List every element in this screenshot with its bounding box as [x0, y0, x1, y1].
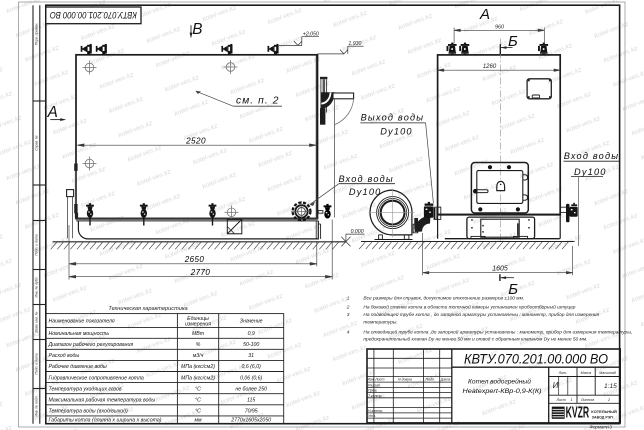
svg-text:Котел водогрейный: Котел водогрейный: [468, 378, 531, 386]
svg-text:Лист: Лист: [374, 378, 384, 382]
svg-text:1260: 1260: [483, 64, 497, 70]
svg-text:не более 250: не более 250: [235, 386, 267, 392]
svg-text:Техническая характеристика: Техническая характеристика: [108, 306, 187, 312]
svg-text:Пров.: Пров.: [368, 389, 377, 393]
svg-text:м3/ч: м3/ч: [193, 353, 204, 359]
svg-text:Максимальная рабочая температу: Максимальная рабочая температура воды: [49, 398, 156, 404]
svg-text:+2.050: +2.050: [303, 32, 319, 38]
svg-text:В: В: [192, 21, 202, 38]
svg-text:1:15: 1:15: [604, 383, 617, 390]
svg-text:50-100: 50-100: [243, 342, 259, 348]
svg-text:Вход воды: Вход воды: [564, 151, 619, 161]
svg-text:2770: 2770: [190, 268, 211, 277]
svg-text:см. п. 2: см. п. 2: [236, 96, 279, 107]
svg-text:Взам. инв. №: Взам. инв. №: [35, 311, 39, 332]
svg-text:1: 1: [347, 295, 350, 301]
svg-text:KVZR: KVZR: [566, 404, 590, 421]
svg-text:0.000: 0.000: [351, 229, 364, 235]
svg-text:70/95: 70/95: [245, 409, 258, 415]
svg-text:Вход воды: Вход воды: [339, 174, 394, 184]
svg-text:Номинальная мощность: Номинальная мощность: [49, 331, 110, 337]
svg-text:Дата: Дата: [440, 378, 450, 382]
svg-text:Утв.: Утв.: [368, 414, 376, 418]
svg-text:1.930: 1.930: [348, 41, 361, 47]
svg-text:предохранительный клапан Dy н: предохранительный клапан Dy не менее 50 …: [363, 335, 587, 342]
svg-text:И: И: [553, 381, 559, 390]
svg-text:Изм.: Изм.: [368, 378, 375, 382]
svg-text:Температура воды (вход/выход): Температура воды (вход/выход): [49, 409, 128, 415]
svg-text:Справ. №: Справ. №: [35, 135, 39, 151]
svg-text:°С: °С: [195, 409, 201, 415]
svg-text:Подп. и дата: Подп. и дата: [35, 353, 39, 374]
svg-text:Heatexpert-КВр-0,9-К(К): Heatexpert-КВр-0,9-К(К): [463, 388, 542, 395]
svg-text:Выход воды: Выход воды: [361, 112, 425, 122]
svg-text:А: А: [479, 6, 490, 23]
svg-text:Dy100: Dy100: [349, 187, 382, 197]
svg-text:Все размеры для справок, допус: Все размеры для справок, допустимое откл…: [363, 295, 524, 301]
svg-text:Т.контр.: Т.контр.: [368, 394, 383, 398]
svg-text:А3: А3: [606, 425, 613, 430]
svg-text:0,6 (6,0): 0,6 (6,0): [242, 364, 262, 370]
svg-text:1: 1: [571, 398, 573, 402]
svg-text:2: 2: [607, 398, 610, 402]
svg-text:%: %: [196, 342, 201, 348]
svg-text:Масса: Масса: [581, 371, 592, 375]
svg-text:Подп.: Подп.: [426, 378, 436, 382]
svg-text:Лит.: Лит.: [558, 371, 567, 375]
svg-text:МПа (кгс/см2): МПа (кгс/см2): [181, 364, 215, 370]
svg-text:Рабочее давление воды: Рабочее давление воды: [49, 364, 107, 370]
svg-text:На отводящей трубе котла ,до з: На отводящей трубе котла ,до запорной ар…: [363, 328, 632, 335]
svg-text:0,06 (0,6): 0,06 (0,6): [240, 375, 262, 381]
svg-text:КВТУ.070.201.00.000 ВО: КВТУ.070.201.00.000 ВО: [50, 10, 137, 20]
svg-text:Dy100: Dy100: [574, 167, 607, 177]
svg-text:измерения: измерения: [185, 321, 211, 327]
svg-text:Гидравлическое сопротивление к: Гидравлическое сопротивление котла: [49, 375, 144, 381]
svg-text:Инв. № подл.: Инв. № подл.: [35, 395, 39, 416]
svg-text:МВт: МВт: [192, 331, 205, 337]
svg-text:На подводящей трубе котла , д: На подводящей трубе котла , до запорной …: [363, 311, 599, 318]
svg-text:Разраб.: Разраб.: [368, 383, 381, 387]
svg-text:КОТЕЛЬНЫЙ: КОТЕЛЬНЫЙ: [591, 409, 617, 414]
svg-text:Н.контр.: Н.контр.: [368, 409, 383, 413]
svg-text:Температура уходящих газов: Температура уходящих газов: [49, 386, 122, 392]
svg-text:1605: 1605: [492, 266, 508, 273]
svg-text:На боковой стенке котла в обла: На боковой стенке котла в области топочн…: [363, 303, 575, 310]
svg-text:960: 960: [495, 25, 504, 31]
svg-text:4: 4: [347, 329, 350, 335]
svg-text:Масштаб: Масштаб: [599, 371, 617, 375]
svg-text:115: 115: [247, 398, 255, 404]
svg-text:Габариты котла (длинна х ширин: Габариты котла (длинна х ширина х высота…: [49, 417, 162, 423]
svg-text:31: 31: [248, 353, 254, 359]
svg-text:температуры.: температуры.: [363, 320, 397, 325]
svg-text:2650: 2650: [184, 255, 205, 264]
svg-text:Лист: Лист: [556, 398, 566, 402]
svg-text:Подп. и дата: Подп. и дата: [35, 234, 39, 255]
svg-text:Значение: Значение: [240, 319, 263, 325]
svg-text:0,9: 0,9: [248, 331, 255, 337]
svg-text:2: 2: [346, 304, 350, 310]
svg-text:КВТУ.070.201.00.000 ВО: КВТУ.070.201.00.000 ВО: [464, 351, 608, 366]
svg-text:Расход воды: Расход воды: [49, 353, 80, 359]
svg-text:Листов: Листов: [580, 398, 594, 402]
svg-text:N докум.: N докум.: [398, 378, 413, 382]
svg-text:Инв. № дубл.: Инв. № дубл.: [35, 277, 39, 298]
svg-text:°С: °С: [195, 398, 201, 404]
svg-text:МПа (кгс/см2): МПа (кгс/см2): [181, 375, 215, 381]
svg-text:Б: Б: [508, 33, 518, 50]
svg-text:2520: 2520: [185, 136, 206, 145]
svg-text:Dy100: Dy100: [380, 126, 413, 136]
svg-text:Диапазон рабочего регулировани: Диапазон рабочего регулирования: [48, 342, 134, 348]
svg-text:А: А: [47, 104, 58, 121]
svg-text:2770х1605х2050: 2770х1605х2050: [230, 417, 271, 423]
svg-text:°С: °С: [195, 386, 201, 392]
svg-text:Перв. примен.: Перв. примен.: [35, 23, 39, 46]
svg-text:ЗАВОД РЭП: ЗАВОД РЭП: [592, 414, 613, 419]
svg-text:Наименование показателя: Наименование показателя: [49, 319, 115, 325]
svg-text:3: 3: [347, 312, 350, 318]
svg-text:мм: мм: [194, 417, 202, 423]
svg-text:Формат: Формат: [590, 425, 608, 430]
